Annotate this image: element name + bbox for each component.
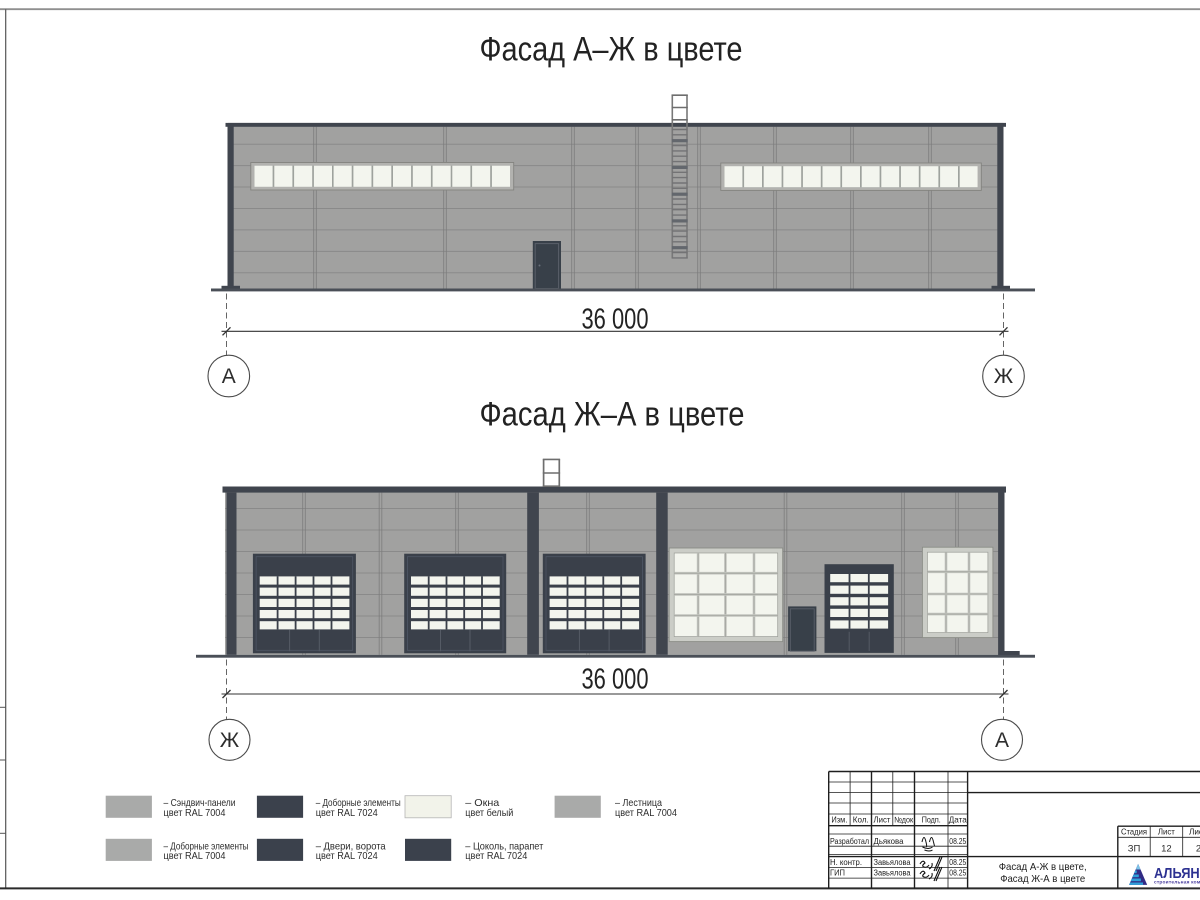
svg-text:Фасад Ж-А в цвете: Фасад Ж-А в цвете (1000, 874, 1085, 885)
svg-text:цвет RAL 7004: цвет RAL 7004 (164, 807, 226, 819)
svg-text:2: 2 (1196, 844, 1200, 855)
svg-text:Стадия: Стадия (1121, 827, 1147, 836)
svg-text:36 000: 36 000 (582, 304, 649, 336)
svg-text:12: 12 (1161, 844, 1172, 855)
svg-text:Завьялова: Завьялова (874, 869, 912, 878)
svg-text:ЗП: ЗП (1128, 844, 1141, 855)
svg-text:№док: №док (894, 816, 913, 825)
svg-text:Лис: Лис (1189, 827, 1200, 836)
svg-text:Фасад А–Ж в цвете: Фасад А–Ж в цвете (480, 31, 743, 69)
svg-text:цвет RAL 7024: цвет RAL 7024 (316, 807, 378, 819)
svg-text:Кол.: Кол. (853, 816, 869, 825)
svg-text:36 000: 36 000 (582, 664, 649, 696)
svg-text:цвет RAL 7004: цвет RAL 7004 (164, 850, 226, 862)
svg-text:08.25: 08.25 (949, 858, 966, 867)
svg-text:Завьялова: Завьялова (874, 858, 912, 867)
svg-text:цвет RAL 7024: цвет RAL 7024 (465, 850, 527, 862)
svg-text:Фасад Ж–А в цвете: Фасад Ж–А в цвете (480, 396, 745, 434)
svg-text:Н. контр.: Н. контр. (830, 858, 862, 867)
svg-text:08.25: 08.25 (949, 837, 966, 846)
svg-text:А: А (995, 729, 1009, 752)
svg-text:Лист: Лист (1158, 827, 1175, 836)
svg-text:ГИП: ГИП (830, 869, 845, 878)
svg-text:Изм.: Изм. (831, 816, 847, 825)
svg-text:Ж: Ж (994, 365, 1014, 388)
svg-text:Подп.: Подп. (922, 816, 941, 825)
svg-text:Разработал: Разработал (830, 837, 869, 846)
svg-text:цвет RAL 7024: цвет RAL 7024 (316, 850, 378, 862)
svg-text:цвет белый: цвет белый (465, 807, 513, 819)
svg-text:АЛЬЯНС: АЛЬЯНС (1154, 866, 1200, 882)
svg-text:цвет RAL 7004: цвет RAL 7004 (615, 807, 677, 819)
svg-text:А: А (222, 365, 236, 388)
svg-text:строительная компания: строительная компания (1154, 881, 1200, 886)
svg-text:Дьякова: Дьякова (874, 837, 905, 846)
svg-text:Ж: Ж (220, 729, 240, 752)
svg-text:Лист: Лист (874, 816, 891, 825)
svg-text:08.25: 08.25 (949, 869, 966, 878)
svg-text:Дата: Дата (949, 816, 967, 825)
svg-text:Фасад А-Ж в цвете,: Фасад А-Ж в цвете, (999, 862, 1087, 873)
